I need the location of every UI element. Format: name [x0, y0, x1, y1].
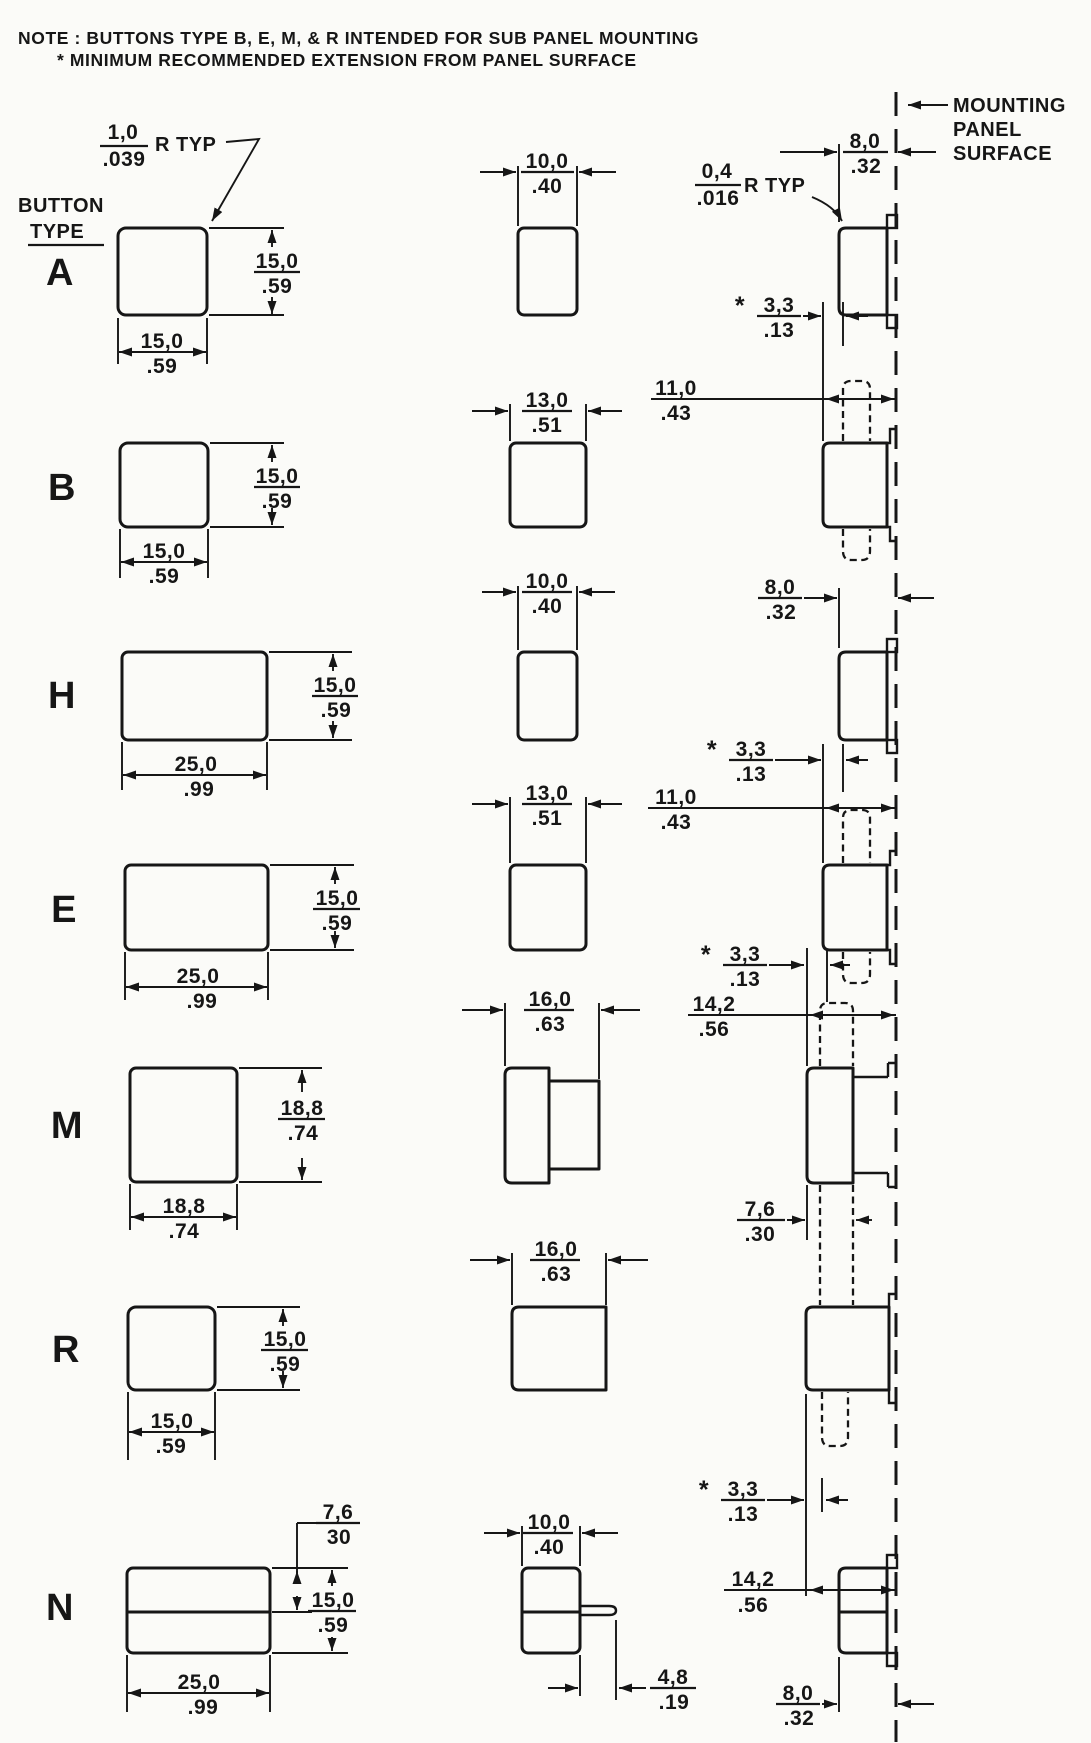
row-n-front-width-dim: 25,0 .99 [127, 1655, 270, 1719]
dim-mm: 15,0 [264, 1328, 307, 1351]
dim-mm: 14,2 [732, 1568, 775, 1591]
dim-in: .59 [149, 565, 180, 588]
dim-in: .59 [318, 1614, 349, 1637]
side-radius-mm: 0,4 [702, 160, 733, 183]
button-panel-body [839, 652, 887, 740]
dim-mm: 8,0 [850, 130, 881, 153]
button-panel-body [839, 228, 887, 315]
front-radius-mm: 1,0 [108, 121, 139, 144]
dim-mm: 3,3 [764, 294, 795, 317]
side-view-body [510, 443, 586, 527]
drawing-sheet: NOTE : BUTTONS TYPE B, E, M, & R INTENDE… [0, 0, 1091, 1743]
dim-in: .63 [535, 1013, 566, 1036]
dim-mm: 16,0 [529, 988, 572, 1011]
side-radius-in: .016 [697, 187, 740, 210]
dim-mm: 15,0 [256, 250, 299, 273]
row-h-front-view [122, 652, 267, 740]
rear-step-and-hooks [853, 1063, 897, 1187]
dim-in: .51 [532, 807, 563, 830]
side-view-body [518, 652, 577, 740]
panel-word: PANEL [953, 119, 1022, 141]
row-n-front-view [127, 1568, 270, 1653]
row-e-type-label: E [51, 889, 77, 931]
plunger-dashed-bottom [820, 1185, 853, 1305]
row-r-front-view [128, 1307, 215, 1390]
row-r: R 15,0 .59 15,0 .59 16,0 .63 [52, 1238, 897, 1617]
side-view-body [518, 228, 577, 315]
dim-in: 30 [327, 1526, 351, 1549]
ext-lines [580, 1620, 616, 1700]
dim-in: .32 [766, 601, 797, 624]
dim-mm: 25,0 [175, 753, 218, 776]
dim-in: .43 [661, 402, 692, 425]
dim-in: .74 [169, 1220, 200, 1243]
row-r-front-width-dim: 15,0 .59 [128, 1392, 215, 1460]
dim-mm: 3,3 [736, 738, 767, 761]
row-m-front-width-dim: 18,8 .74 [130, 1184, 237, 1243]
row-m-body-length-dim: 14,2 .56 [688, 993, 896, 1041]
row-b-side-view: 13,0 .51 [472, 389, 622, 527]
dim-mm: 7,6 [323, 1501, 354, 1524]
dim-mm: 25,0 [177, 965, 220, 988]
dim-mm: 18,8 [163, 1195, 206, 1218]
plunger-dashed-bottom [843, 952, 870, 983]
row-a-front-width-dim: 15,0 .59 [118, 318, 207, 378]
row-m-front-view [130, 1068, 237, 1182]
dim-in: .63 [541, 1263, 572, 1286]
row-h-side-view: 10,0 .40 [482, 570, 615, 740]
note-line-1: NOTE : BUTTONS TYPE B, E, M, & R INTENDE… [18, 28, 699, 48]
callout-front-corner-radius: 1,0 .039 R TYP [100, 121, 259, 221]
dim-mm: 15,0 [316, 887, 359, 910]
side-view-cap [505, 1068, 549, 1183]
row-e-front-width-dim: 25,0 .99 [125, 952, 268, 1013]
dim-in: .59 [262, 275, 293, 298]
row-a-side-view: 10,0 .40 [480, 150, 616, 315]
row-r-type-label: R [52, 1329, 80, 1371]
dim-mm: 3,3 [728, 1478, 759, 1501]
dim-in: .59 [156, 1435, 187, 1458]
button-type-header: BUTTON TYPE [18, 195, 104, 245]
button-dimension-drawing: NOTE : BUTTONS TYPE B, E, M, & R INTENDE… [0, 0, 1091, 1743]
type-label: TYPE [30, 221, 84, 243]
dim-mm: 15,0 [312, 1589, 355, 1612]
dim-mm: 16,0 [535, 1238, 578, 1261]
dim-in: .32 [784, 1707, 815, 1730]
note-line-2: * MINIMUM RECOMMENDED EXTENSION FROM PAN… [57, 50, 637, 70]
plunger-dashed-bottom [822, 1392, 848, 1446]
row-n-pin-length-dim: 4,8 .19 [548, 1620, 696, 1714]
ext-lines [823, 302, 843, 441]
row-a-type-label: A [46, 252, 74, 294]
row-a-extension-dim: 8,0 .32 [780, 130, 936, 178]
row-m-front-height-dim: 18,8 .74 [239, 1068, 325, 1182]
row-r-body-length-dim: 14,2 .56 [724, 1568, 896, 1617]
dim-mm: 15,0 [143, 540, 186, 563]
dim-mm: 25,0 [178, 1671, 221, 1694]
dim-in: .40 [532, 595, 563, 618]
row-m-panel-view: * 3,3 .13 14,2 .56 7,6 .30 [688, 941, 897, 1305]
row-e-side-view: 13,0 .51 [472, 782, 622, 950]
dim-mm: 8,0 [783, 1682, 814, 1705]
mounting-panel-surface: MOUNTING PANEL SURFACE [896, 92, 1066, 1742]
row-m-type-label: M [51, 1105, 83, 1147]
row-b-front-height-dim: 15,0 .59 [210, 443, 300, 527]
leader [297, 1523, 316, 1584]
dim-in: .40 [534, 1536, 565, 1559]
row-n-type-label: N [46, 1587, 74, 1629]
dim-in: .59 [322, 912, 353, 935]
dim-in: .74 [288, 1122, 319, 1145]
row-n-front-height-dim: 15,0 .59 [308, 1570, 356, 1651]
row-m: M 18,8 .74 18,8 .74 16,0 .63 [51, 941, 897, 1305]
row-r-side-view: 16,0 .63 [470, 1238, 648, 1390]
dim-mm: 11,0 [655, 377, 697, 400]
side-radius-rtyp: R TYP [744, 175, 805, 197]
row-n: N 7,6 30 15,0 .59 25,0 .99 [46, 1501, 934, 1730]
row-h-extension-dim: 8,0 .32 [758, 576, 934, 624]
dim-mm: 4,8 [658, 1666, 689, 1689]
button-label: BUTTON [18, 195, 104, 217]
plunger-dashed-top [843, 381, 870, 441]
row-e-front-view [125, 865, 268, 950]
row-e-panel-view: * 3,3 .13 11,0 .43 [648, 736, 897, 983]
dim-in: .13 [736, 763, 767, 786]
leader-arrow [212, 139, 259, 221]
dim-mm: 15,0 [141, 330, 184, 353]
row-e-body-length-dim: 11,0 .43 [648, 786, 896, 834]
ext-lines [807, 948, 827, 1240]
asterisk: * [699, 1476, 709, 1504]
row-b-panel-view: * 3,3 .13 11,0 .43 [651, 292, 897, 560]
dim-mm: 14,2 [693, 993, 736, 1016]
dim-mm: 13,0 [526, 782, 569, 805]
dim-in: .59 [270, 1353, 301, 1376]
dim-mm: 10,0 [526, 570, 569, 593]
dim-in: .40 [532, 175, 563, 198]
front-radius-in: .039 [103, 148, 146, 171]
ext-lines [823, 744, 843, 863]
dim-in: .59 [262, 490, 293, 513]
note: NOTE : BUTTONS TYPE B, E, M, & R INTENDE… [18, 28, 699, 70]
dim-mm: 11,0 [655, 786, 697, 809]
row-r-min-extension-dim: * 3,3 .13 [699, 1476, 848, 1526]
dim-mm: 10,0 [528, 1511, 571, 1534]
dim-mm: 13,0 [526, 389, 569, 412]
row-b-front-width-dim: 15,0 .59 [120, 529, 208, 588]
callout-side-corner-radius: 0,4 .016 R TYP [695, 160, 842, 221]
dim-in: .99 [188, 1696, 219, 1719]
dim-mm: 3,3 [730, 943, 761, 966]
dim-in: .13 [764, 319, 795, 342]
surface-word: SURFACE [953, 143, 1052, 165]
button-panel-body [807, 1068, 853, 1183]
mounting-word: MOUNTING [953, 95, 1066, 117]
row-h: H 15,0 .59 25,0 .99 10,0 .40 [48, 570, 934, 801]
leader-arrow [812, 197, 842, 221]
dim-in: .99 [184, 778, 215, 801]
side-view-body [510, 865, 586, 950]
dim-in: .56 [699, 1018, 730, 1041]
dim-in: .30 [745, 1223, 776, 1246]
row-b-body-length-dim: 11,0 .43 [651, 377, 896, 425]
row-h-front-height-dim: 15,0 .59 [269, 652, 358, 740]
terminal-pin [580, 1606, 616, 1615]
asterisk: * [735, 292, 745, 320]
asterisk: * [701, 941, 711, 969]
front-radius-rtyp: R TYP [155, 134, 216, 156]
row-n-side-view: 10,0 .40 4,8 .19 [484, 1511, 696, 1714]
row-m-side-view: 16,0 .63 [462, 988, 640, 1183]
dim-mm: 7,6 [745, 1198, 776, 1221]
dim-in: .43 [661, 811, 692, 834]
side-view-rear [549, 1081, 599, 1169]
row-h-front-width-dim: 25,0 .99 [122, 742, 267, 801]
dim-in: .59 [321, 699, 352, 722]
dim-mm: 15,0 [151, 1410, 194, 1433]
dim-in: .19 [659, 1691, 690, 1714]
row-a-front-height-dim: 15,0 .59 [209, 228, 300, 315]
dim-mm: 15,0 [314, 674, 357, 697]
button-panel-body [823, 865, 887, 950]
asterisk: * [707, 736, 717, 764]
side-view-body [512, 1307, 606, 1390]
row-b-front-view [120, 443, 208, 527]
dim-in: .56 [738, 1594, 769, 1617]
row-n-panel-view: 8,0 .32 [776, 1555, 934, 1730]
dim-in: .59 [147, 355, 178, 378]
row-h-type-label: H [48, 675, 76, 717]
row-b-type-label: B [48, 467, 76, 509]
ext-lines [806, 1394, 822, 1596]
row-m-plunger-width-dim: 7,6 .30 [737, 1198, 872, 1246]
plunger-dashed-bottom [843, 529, 870, 560]
row-a-front-view [118, 228, 207, 315]
dim-in: .99 [187, 990, 218, 1013]
row-b-min-extension-dim: * 3,3 .13 [735, 292, 868, 342]
dim-mm: 10,0 [526, 150, 569, 173]
row-h-panel-view: 8,0 .32 [758, 576, 934, 753]
dim-mm: 8,0 [765, 576, 796, 599]
dim-in: .32 [851, 155, 882, 178]
button-panel-body [806, 1307, 889, 1390]
dim-in: .51 [532, 414, 563, 437]
button-panel-body [823, 443, 887, 527]
dim-mm: 15,0 [256, 465, 299, 488]
dim-mm: 18,8 [281, 1097, 324, 1120]
plunger-dashed-top [820, 1003, 853, 1066]
dim-in: .13 [728, 1503, 759, 1526]
row-r-front-height-dim: 15,0 .59 [217, 1307, 308, 1390]
row-a: A 15,0 .59 15,0 .59 10,0 .40 [46, 130, 936, 378]
plunger-dashed-top [843, 810, 870, 863]
row-e-front-height-dim: 15,0 .59 [270, 865, 360, 950]
row-a-panel-view: 8,0 .32 [780, 130, 936, 328]
row-e: E 15,0 .59 25,0 .99 13,0 .51 [51, 736, 897, 1013]
row-n-extension-dim: 8,0 .32 [776, 1682, 934, 1730]
dim-in: .13 [730, 968, 761, 991]
